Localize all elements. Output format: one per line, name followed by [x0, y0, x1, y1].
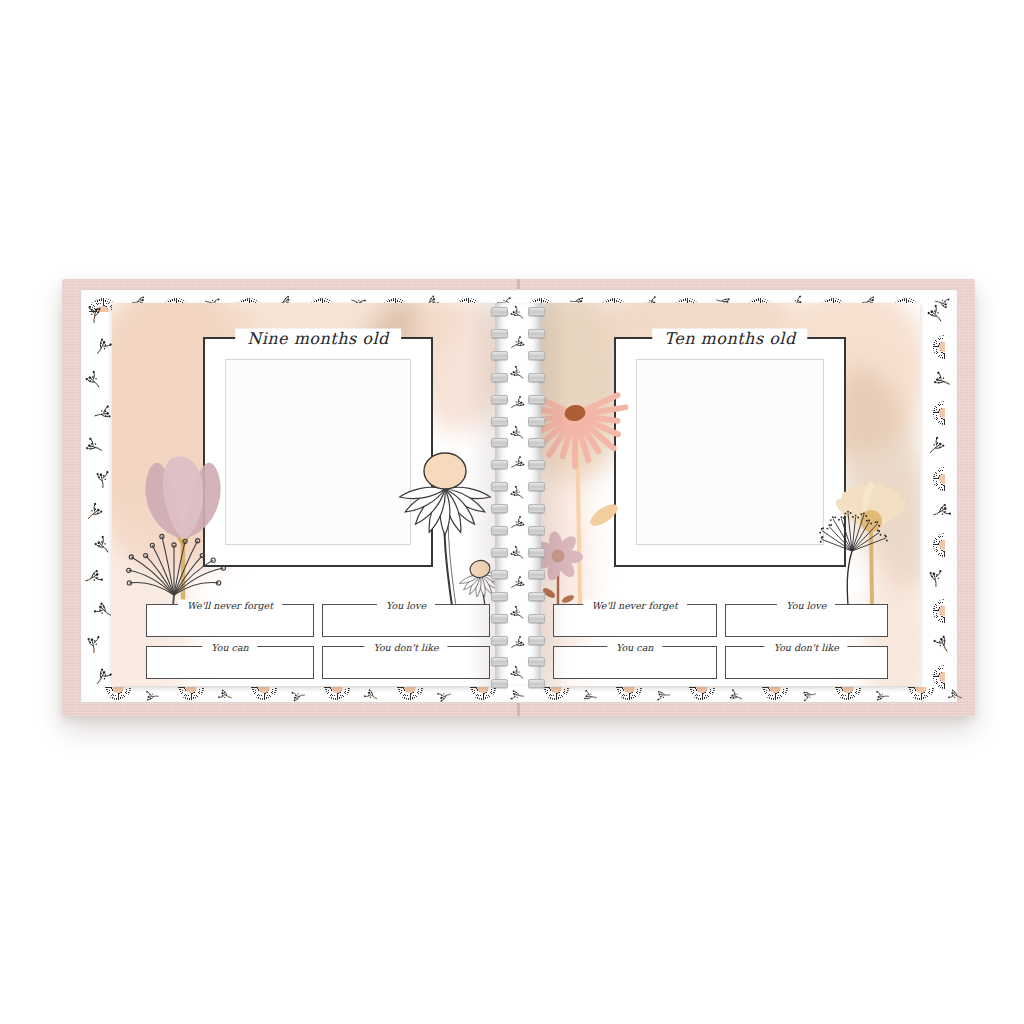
floral-sprig-motif — [655, 688, 672, 704]
binding-ring — [491, 329, 545, 338]
binding-ring — [491, 438, 545, 447]
field-box-you-dont-like: You don't like — [725, 646, 889, 679]
fan-flower-motif — [251, 687, 277, 700]
binding-ring — [491, 679, 545, 688]
floral-sprig-motif — [81, 433, 107, 458]
floral-sprig-motif — [85, 304, 103, 324]
fan-flower-motif — [689, 687, 715, 700]
floral-sprig-motif — [929, 631, 955, 658]
field-box-you-can: You can — [146, 646, 314, 679]
floral-sprig-motif — [435, 687, 453, 705]
field-label: You can — [607, 642, 662, 653]
field-label: You love — [777, 600, 835, 611]
binding-ring — [491, 526, 545, 535]
floral-sprig-motif — [215, 687, 234, 705]
floral-sprig-motif — [800, 687, 818, 705]
binding-ring — [491, 351, 545, 360]
binding-ring — [491, 504, 545, 513]
field-label: You love — [377, 600, 435, 611]
seed-head-flower — [127, 534, 226, 606]
binding-ring — [491, 592, 545, 601]
floral-sprig-motif — [580, 687, 599, 705]
binding-ring — [491, 614, 545, 623]
left-page: Nine months old — [112, 303, 495, 686]
fan-flower-motif — [933, 335, 945, 359]
binding-ring — [491, 636, 545, 645]
fields-grid-left: We'll never forget You love You can You … — [146, 604, 490, 679]
fan-flower-motif — [470, 687, 496, 700]
field-label: You don't like — [765, 642, 848, 653]
floral-sprig-motif — [930, 500, 955, 524]
binding-ring — [491, 482, 545, 491]
field-box-never-forget: We'll never forget — [146, 604, 314, 637]
fan-flower-motif — [178, 687, 204, 700]
right-page: Ten months old — [541, 303, 920, 686]
binding-ring — [491, 307, 545, 316]
binding-ring — [491, 460, 545, 469]
binding-ring — [491, 657, 545, 666]
fan-flower-motif — [933, 533, 945, 557]
memory-book: Nine months old — [62, 279, 975, 716]
floral-sprig-motif — [726, 686, 746, 706]
field-box-you-dont-like: You don't like — [322, 646, 490, 679]
field-label: You don't like — [364, 642, 447, 653]
floral-sprig-motif — [94, 469, 112, 489]
pattern-band-left — [81, 302, 115, 694]
small-coneflower-flower — [459, 559, 495, 606]
field-box-you-love: You love — [725, 604, 889, 637]
binding-ring — [491, 570, 545, 579]
field-label: You can — [202, 642, 257, 653]
field-box-you-can: You can — [553, 646, 717, 679]
field-label: We'll never forget — [583, 600, 687, 611]
fan-flower-motif — [762, 687, 788, 700]
fan-flower-motif — [543, 687, 569, 700]
fan-flower-motif — [397, 687, 423, 700]
binding-ring — [491, 548, 545, 557]
floral-sprig-motif — [85, 634, 103, 654]
binding-ring — [491, 395, 545, 404]
floral-sprig-motif — [874, 688, 891, 703]
fan-flower-motif — [835, 687, 861, 700]
fan-flower-motif — [324, 687, 350, 700]
pattern-band-right — [921, 302, 959, 694]
floral-sprig-motif — [927, 568, 945, 588]
fan-flower-motif — [616, 687, 642, 700]
floral-sprig-motif — [81, 499, 108, 526]
fan-flower-motif — [933, 467, 945, 491]
floral-sprig-motif — [81, 367, 107, 394]
field-box-never-forget: We'll never forget — [553, 604, 717, 637]
floral-sprig-motif — [923, 433, 950, 460]
field-box-you-love: You love — [322, 604, 490, 637]
pattern-band-bottom — [81, 686, 959, 704]
tulip-flower — [145, 456, 220, 606]
binding-ring — [491, 417, 545, 426]
spiral-wire-binding — [491, 303, 545, 686]
fan-flower-motif — [933, 665, 945, 689]
fields-grid-right: We'll never forget You love You can You … — [553, 604, 888, 679]
fan-flower-motif — [933, 599, 945, 623]
binding-ring — [491, 373, 545, 382]
floral-sprig-motif — [923, 301, 949, 328]
product-photo-canvas: Nine months old — [0, 0, 1024, 1024]
floral-sprig-motif — [82, 566, 107, 590]
floral-sprig-motif — [509, 688, 526, 703]
field-label: We'll never forget — [178, 600, 282, 611]
floral-sprig-motif — [290, 688, 307, 704]
fan-flower-motif — [933, 401, 945, 425]
floral-sprig-motif — [929, 367, 955, 392]
floral-sprig-motif — [361, 686, 381, 706]
floral-sprig-motif — [144, 688, 161, 703]
